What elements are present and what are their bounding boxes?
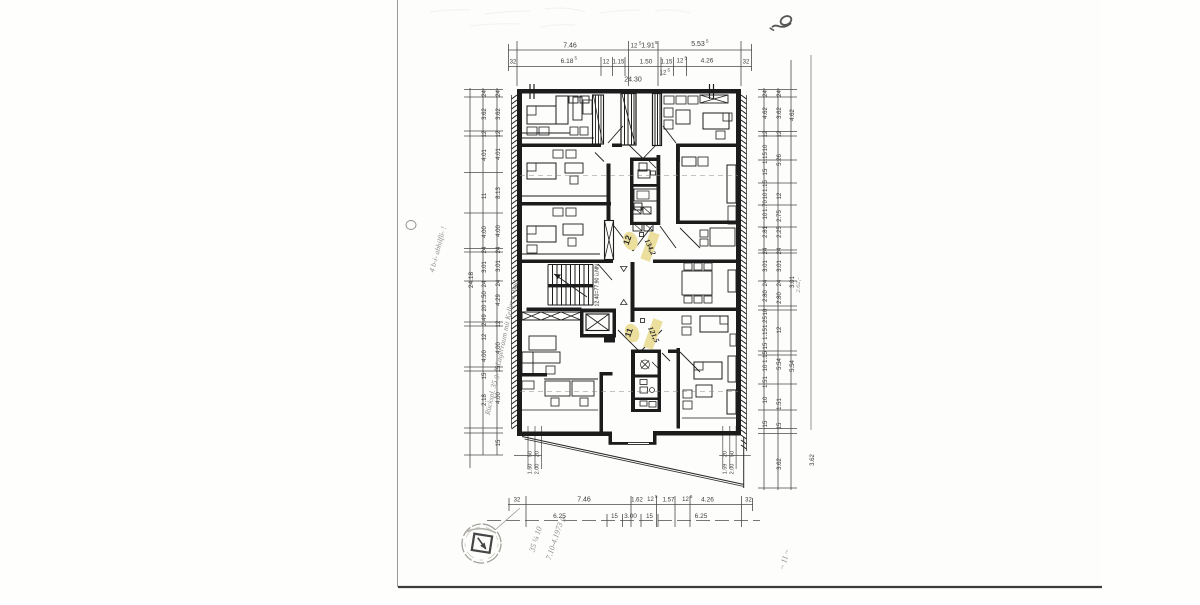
svg-text:1.62: 1.62 — [631, 498, 643, 504]
svg-text:12: 12 — [777, 192, 783, 199]
svg-text:1.57: 1.57 — [663, 498, 675, 504]
svg-text:4.00: 4.00 — [496, 392, 502, 404]
svg-text:11: 11 — [482, 192, 488, 199]
svg-text:12: 12 — [496, 130, 502, 137]
svg-text:3.00: 3.00 — [624, 513, 637, 520]
svg-text:3.62: 3.62 — [482, 108, 488, 120]
svg-text:24: 24 — [496, 90, 502, 97]
svg-text:1.50: 1.50 — [482, 291, 488, 303]
svg-text:4.00: 4.00 — [482, 350, 488, 362]
svg-text:8.13: 8.13 — [496, 187, 502, 199]
svg-text:24: 24 — [496, 279, 502, 286]
svg-text:15: 15 — [611, 514, 618, 520]
svg-text:1.15: 1.15 — [661, 60, 673, 66]
svg-text:1.15: 1.15 — [763, 328, 769, 340]
svg-text:1.15: 1.15 — [763, 351, 769, 363]
svg-text:15: 15 — [777, 422, 783, 429]
svg-text:6.25: 6.25 — [695, 513, 708, 520]
svg-text:1.15: 1.15 — [613, 60, 625, 66]
svg-text:24: 24 — [482, 90, 488, 97]
svg-text:2.80: 2.80 — [763, 290, 769, 302]
svg-text:1.15: 1.15 — [763, 180, 769, 192]
svg-text:10: 10 — [763, 364, 769, 371]
svg-text:4.62: 4.62 — [790, 109, 796, 121]
svg-text:10: 10 — [763, 308, 769, 315]
svg-text:2.00: 2.00 — [729, 464, 735, 475]
svg-text:4.00: 4.00 — [482, 226, 488, 238]
svg-text:15: 15 — [763, 420, 769, 427]
svg-text:4.62: 4.62 — [763, 107, 769, 119]
svg-text:20: 20 — [482, 304, 488, 311]
svg-text:24: 24 — [777, 90, 783, 97]
svg-text:3.01: 3.01 — [763, 260, 769, 272]
svg-text:6.18: 6.18 — [561, 58, 574, 65]
svg-text:12: 12 — [763, 130, 769, 137]
svg-text:2.00: 2.00 — [535, 464, 541, 475]
svg-text:3.01: 3.01 — [482, 261, 488, 273]
svg-text:12: 12 — [682, 497, 689, 503]
svg-text:24: 24 — [482, 246, 488, 253]
svg-text:12: 12 — [777, 326, 783, 333]
svg-text:5.26: 5.26 — [777, 154, 783, 166]
svg-text:2.25: 2.25 — [777, 226, 783, 238]
svg-text:2.75: 2.75 — [777, 210, 783, 222]
svg-text:7.46: 7.46 — [563, 43, 577, 50]
svg-text:1.51: 1.51 — [777, 398, 783, 410]
svg-text:24: 24 — [777, 279, 783, 286]
svg-text:12: 12 — [660, 71, 667, 77]
svg-text:7.46: 7.46 — [577, 497, 591, 504]
svg-text:12: 12 — [647, 497, 654, 503]
svg-text:15: 15 — [763, 168, 769, 175]
svg-text:24: 24 — [763, 90, 769, 97]
svg-text:1.70: 1.70 — [763, 200, 769, 212]
svg-text:3.01: 3.01 — [777, 260, 783, 272]
svg-text:12: 12 — [603, 60, 610, 66]
svg-text:24: 24 — [496, 246, 502, 253]
svg-text:1.59: 1.59 — [723, 464, 729, 475]
svg-text:24: 24 — [777, 247, 783, 254]
svg-text:15: 15 — [646, 514, 653, 520]
svg-text:10: 10 — [763, 212, 769, 219]
svg-text:2.81: 2.81 — [763, 226, 769, 238]
svg-text:4.29: 4.29 — [496, 294, 502, 306]
svg-text:15: 15 — [482, 372, 488, 379]
svg-text:4.26: 4.26 — [701, 497, 714, 504]
svg-text:3.01: 3.01 — [496, 260, 502, 272]
svg-text:32: 32 — [743, 60, 750, 66]
svg-text:4.00: 4.00 — [496, 225, 502, 237]
svg-text:20: 20 — [723, 451, 729, 457]
svg-text:5.53: 5.53 — [691, 41, 705, 48]
svg-text:- 12.40=77.90 ü.NN: - 12.40=77.90 ü.NN — [595, 264, 601, 310]
svg-text:10: 10 — [763, 192, 769, 199]
svg-text:15: 15 — [496, 439, 502, 446]
svg-text:24: 24 — [763, 279, 769, 286]
svg-text:1.51: 1.51 — [763, 376, 769, 388]
svg-text:1.50: 1.50 — [640, 59, 653, 66]
svg-text:3.62: 3.62 — [777, 458, 783, 470]
svg-text:3.62: 3.62 — [777, 107, 783, 119]
svg-text:32: 32 — [745, 498, 752, 504]
svg-text:12: 12 — [677, 59, 684, 65]
svg-text:1.15: 1.15 — [763, 152, 769, 164]
svg-text:12: 12 — [777, 130, 783, 137]
svg-text:10: 10 — [763, 396, 769, 403]
svg-text:2.80: 2.80 — [777, 292, 783, 304]
svg-text:50: 50 — [729, 451, 735, 457]
svg-text:50: 50 — [528, 451, 534, 457]
svg-text:32: 32 — [510, 60, 517, 66]
svg-text:2.49: 2.49 — [482, 314, 488, 326]
svg-text:1.25: 1.25 — [763, 316, 769, 328]
svg-text:24.18: 24.18 — [468, 271, 475, 288]
svg-text:24: 24 — [763, 247, 769, 254]
svg-text:5.54: 5.54 — [777, 358, 783, 370]
svg-text:12: 12 — [482, 130, 488, 137]
svg-text:1.50: 1.50 — [528, 464, 534, 475]
svg-text:1.91: 1.91 — [641, 43, 655, 50]
svg-text:4.26: 4.26 — [701, 58, 714, 65]
svg-text:4.01: 4.01 — [482, 149, 488, 161]
svg-text:10: 10 — [763, 144, 769, 151]
svg-text:12: 12 — [631, 44, 638, 50]
svg-text:24.30: 24.30 — [624, 77, 642, 84]
svg-text:15: 15 — [763, 342, 769, 349]
svg-text:12: 12 — [482, 333, 488, 340]
svg-text:5.54: 5.54 — [790, 360, 796, 372]
svg-text:4.01: 4.01 — [496, 148, 502, 160]
svg-text:32: 32 — [514, 498, 521, 504]
svg-text:3.62: 3.62 — [496, 108, 502, 120]
svg-text:20: 20 — [535, 451, 541, 457]
svg-text:3.62: 3.62 — [810, 454, 816, 466]
svg-text:2.62,-: 2.62,- — [795, 277, 802, 292]
svg-text:24: 24 — [482, 280, 488, 287]
